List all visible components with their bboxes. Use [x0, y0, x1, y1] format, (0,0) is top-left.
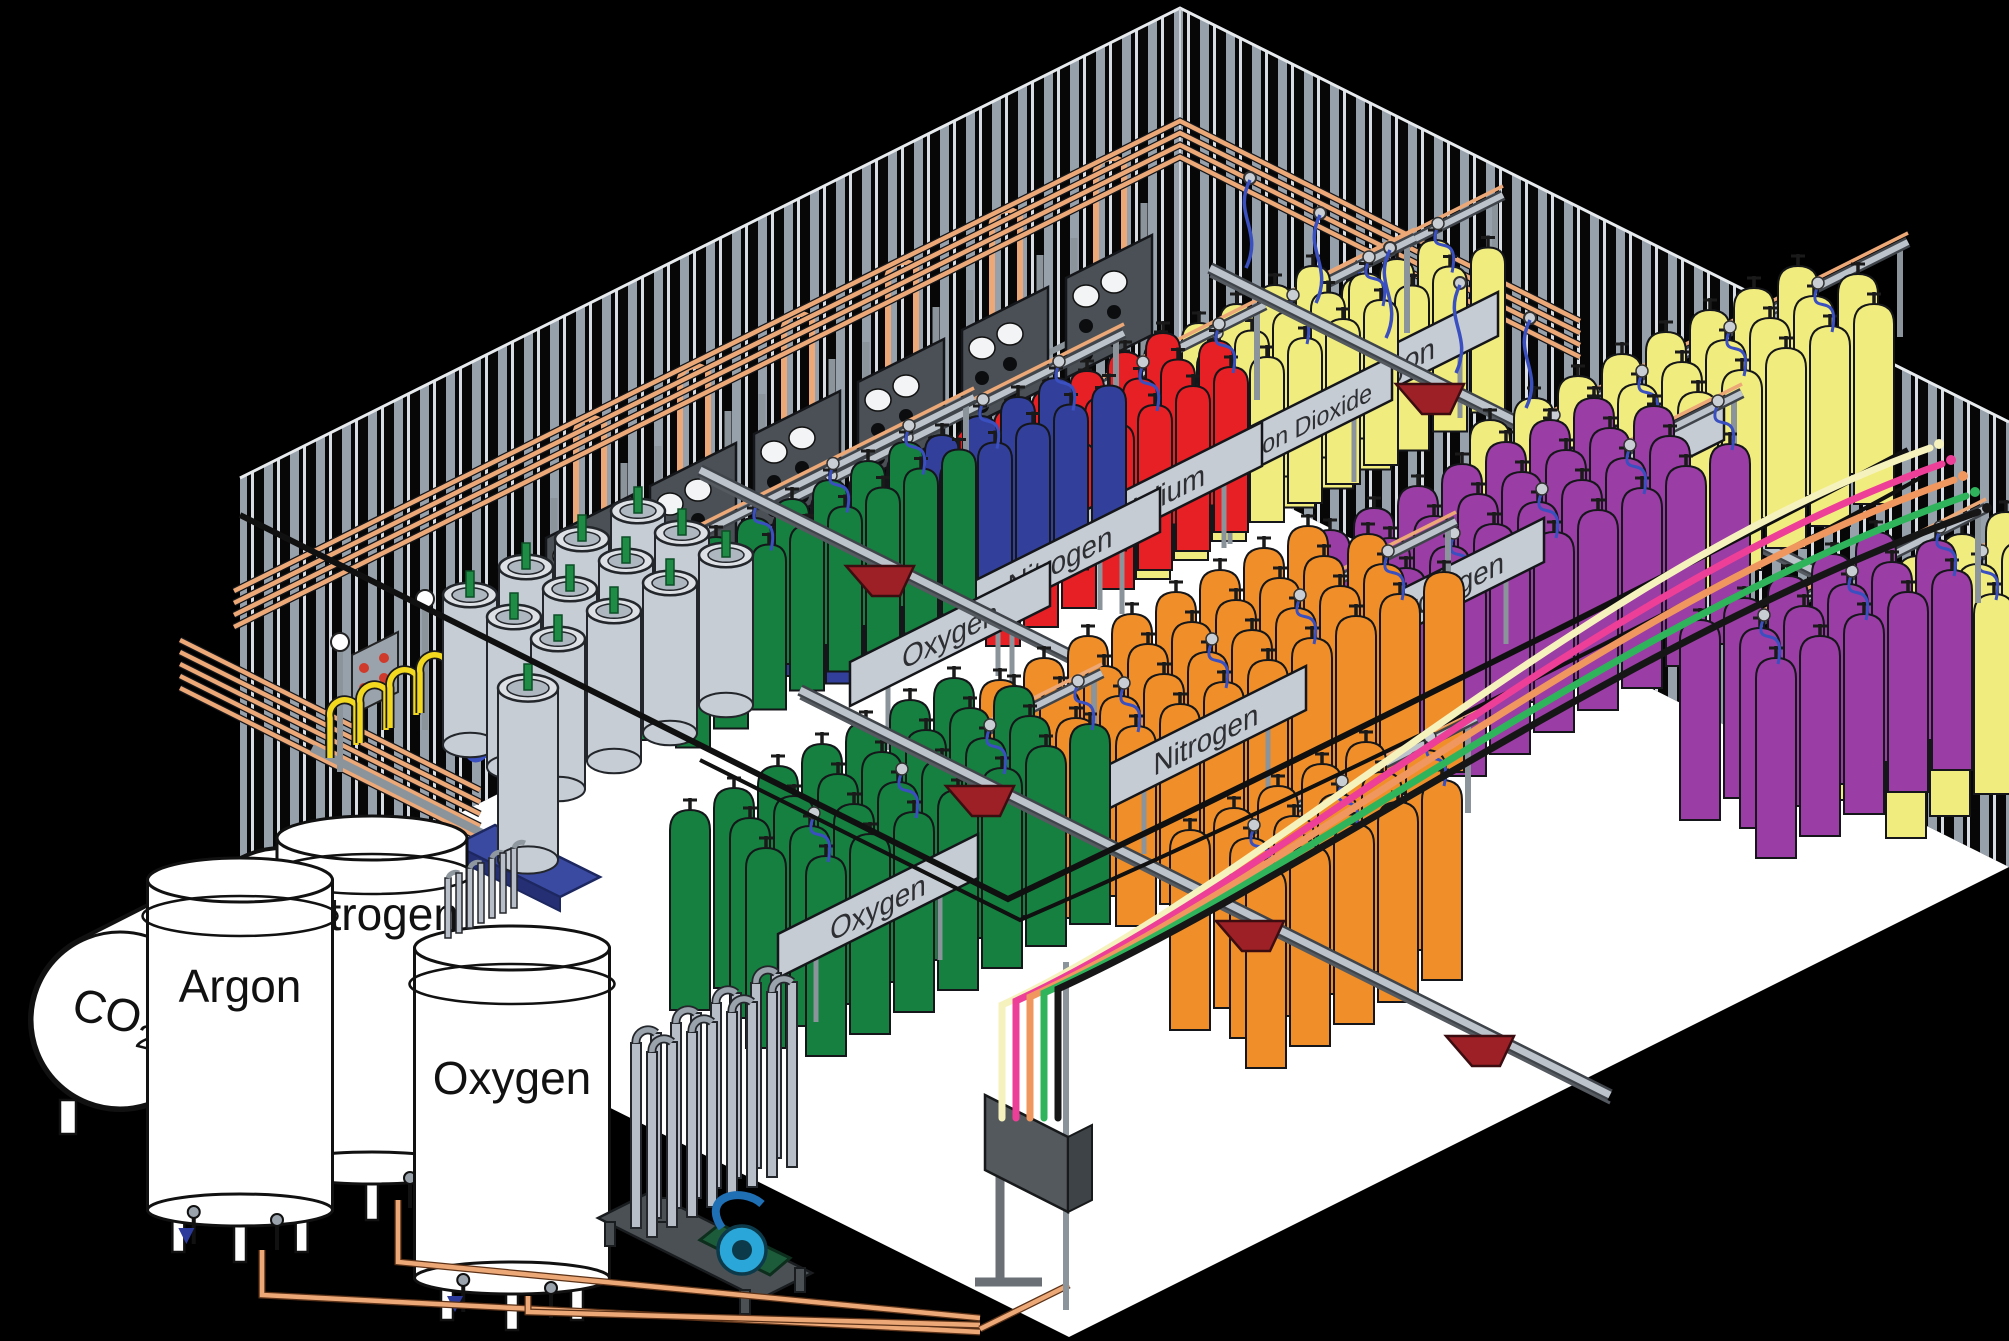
bulk-tank-label: Oxygen [433, 1052, 592, 1104]
gas-cylinder [790, 526, 824, 691]
bulk-tank: Argon [143, 858, 338, 1262]
gas-cylinder [1800, 636, 1840, 836]
gas-cylinder [1974, 594, 2009, 794]
gas-filling-plant-illustration: ArgonCarbon DioxideHeliumNitrogenOxygenA… [0, 0, 2009, 1341]
gas-cylinder [752, 545, 786, 710]
gas-cylinder [1334, 824, 1374, 1024]
gas-cylinder [1888, 592, 1928, 792]
bulk-tank-label: Argon [179, 960, 302, 1012]
gas-cylinder [904, 469, 938, 634]
gas-cylinder [1844, 614, 1884, 814]
isometric-scene: ArgonCarbon DioxideHeliumNitrogenOxygenA… [0, 0, 2009, 1341]
gas-cylinder [1932, 570, 1972, 770]
gas-cylinder [670, 810, 710, 1010]
gas-cylinder [1378, 802, 1418, 1002]
gas-cylinder [1756, 658, 1796, 858]
gas-cylinder [1680, 620, 1720, 820]
gas-cylinder [1246, 868, 1286, 1068]
gas-cylinder [1422, 780, 1462, 980]
